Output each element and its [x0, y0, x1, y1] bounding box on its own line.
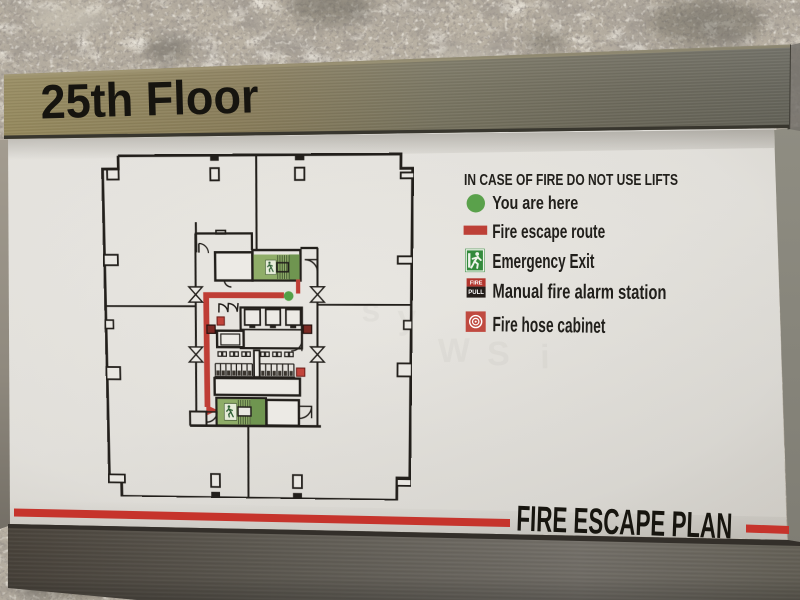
svg-text:FIRE ESCAPE PLAN: FIRE ESCAPE PLAN — [516, 498, 733, 547]
svg-text:IN CASE OF FIRE DO NOT USE LIF: IN CASE OF FIRE DO NOT USE LIFTS — [464, 172, 678, 189]
svg-text:FIRE: FIRE — [470, 281, 483, 287]
svg-text:25th Floor: 25th Floor — [40, 70, 259, 129]
svg-text:PULL: PULL — [468, 290, 484, 296]
svg-text:Manual fire alarm station: Manual fire alarm station — [492, 281, 666, 305]
svg-text:Emergency Exit: Emergency Exit — [492, 251, 594, 273]
svg-text:Fire hose cabinet: Fire hose cabinet — [492, 313, 605, 338]
svg-text:You are here: You are here — [492, 193, 578, 213]
svg-text:Fire escape route: Fire escape route — [492, 221, 605, 243]
